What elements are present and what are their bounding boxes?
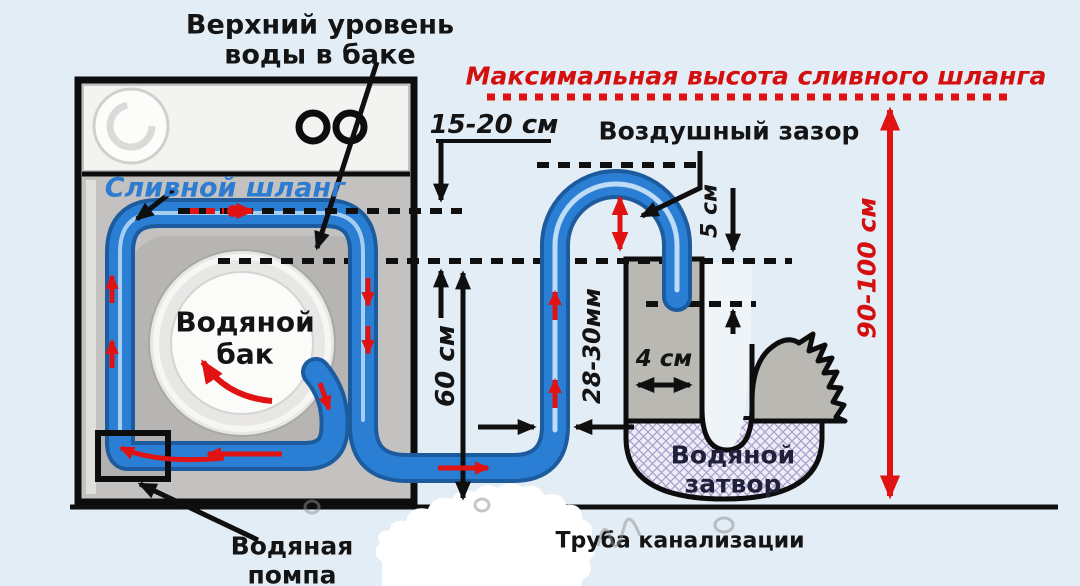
dim-28-30-label: 28-30мм	[578, 288, 606, 404]
machine-bevel	[86, 180, 96, 494]
dim-60-label: 60 см	[431, 325, 461, 407]
dim-4-label: 4 см	[635, 346, 693, 372]
detergent-dial	[94, 89, 168, 163]
air-gap-label: Воздушный зазор	[599, 117, 860, 146]
water-pump-label-line1: Водяная	[231, 532, 354, 561]
water-pump-label-line2: помпа	[247, 561, 336, 586]
dim-90-100-label: 90-100 см	[853, 197, 882, 338]
flow-dot	[227, 205, 239, 217]
water-tank-label-line2: бак	[216, 338, 273, 371]
dim-15-20-label: 15-20 см	[430, 110, 559, 140]
dim-5-label: 5 см	[698, 184, 723, 238]
diagram-canvas: Верхний уровень воды в баке Максимальная…	[0, 0, 1080, 586]
knob-icon	[299, 113, 327, 141]
water-tank-label-line1: Водяной	[175, 306, 314, 339]
diagram-page: Верхний уровень воды в баке Максимальная…	[0, 0, 1080, 586]
drain-hose-label: Сливной шланг	[105, 173, 346, 204]
water-seal-label-line2: затвор	[685, 470, 782, 499]
upper-water-level-label-line1: Верхний уровень	[186, 10, 454, 41]
water-seal-label-line1: Водяной	[671, 441, 795, 470]
upper-water-level-label-line2: воды в баке	[224, 40, 415, 71]
max-drain-height-label: Максимальная высота сливного шланга	[466, 62, 1047, 91]
sewer-pipe-label: Труба канализации	[555, 529, 804, 554]
